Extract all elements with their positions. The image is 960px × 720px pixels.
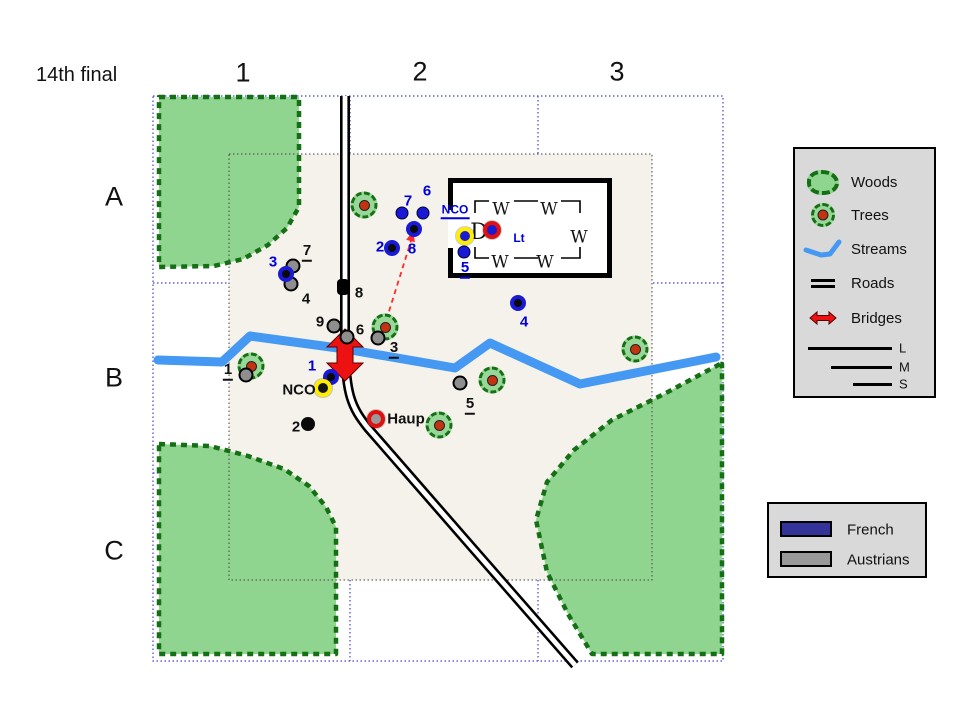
austrian-unit-label-6: 6 (356, 323, 364, 338)
austrian-unit-label-1: 1 (223, 362, 233, 381)
marker-nco[interactable] (314, 379, 332, 397)
bridges-icon (808, 310, 838, 326)
size-line-small (853, 383, 892, 386)
french-unit-label-3: 3 (269, 255, 277, 270)
size-label-l: L (899, 341, 906, 356)
marker-haup[interactable] (367, 410, 385, 428)
building-wall-letter-4: W (491, 255, 508, 272)
french-unit-3[interactable] (278, 266, 294, 282)
marker-nco[interactable] (456, 227, 474, 245)
austrian-unit-1[interactable] (239, 368, 254, 383)
marker-label-nco: NCO (441, 203, 470, 219)
austrian-unit-5[interactable] (453, 376, 468, 391)
woods-icon (807, 170, 839, 195)
austrian-unit-label-2: 2 (292, 420, 300, 435)
streams-icon (803, 238, 843, 260)
building-wall-letter-2: W (540, 202, 557, 219)
french-unit-label-8: 8 (408, 242, 416, 257)
french-swatch (780, 521, 832, 537)
building-wall-letter-5: W (536, 255, 553, 272)
roads-icon (811, 279, 835, 288)
trees-icon (811, 203, 835, 227)
austrian-unit-9[interactable] (327, 319, 342, 334)
austrian-unit-label-9: 9 (316, 315, 324, 330)
tree-icon-4 (622, 336, 649, 363)
tree-icon-5 (479, 367, 506, 394)
legend-label-roads: Roads (851, 275, 894, 292)
size-label-s: S (899, 377, 908, 392)
french-unit-8[interactable] (406, 221, 422, 237)
size-label-m: M (899, 360, 910, 375)
austrian-unit-label-7: 7 (302, 243, 312, 262)
building-wall-letter-1: W (492, 202, 509, 219)
sides-legend: French Austrians (767, 502, 927, 578)
legend-row-roads: Roads (795, 266, 934, 300)
french-unit-6[interactable] (417, 207, 430, 220)
building-wall-letter-3: W (570, 230, 587, 247)
slide-canvas: 14th final 1 2 3 A B C WWWWWD74963152876… (0, 0, 960, 720)
french-unit-label-1: 1 (308, 359, 316, 374)
austrians-swatch (780, 551, 832, 567)
austrian-unit-label-5: 5 (465, 396, 475, 415)
tree-icon-1 (351, 192, 378, 219)
size-line-large (808, 347, 892, 350)
austrian-unit-2[interactable] (301, 417, 315, 431)
french-unit-label-2: 2 (376, 240, 384, 255)
legend-row-woods: Woods (795, 165, 934, 199)
legend-label-woods: Woods (851, 174, 897, 191)
french-unit-5[interactable] (458, 246, 471, 259)
marker-label-lt: Lt (513, 232, 524, 244)
marker-label-haup: Haup (387, 412, 425, 427)
austrian-unit-6[interactable] (340, 330, 355, 345)
legend-label-streams: Streams (851, 241, 907, 258)
austrian-unit-label-8: 8 (355, 286, 363, 301)
austrian-unit-label-3: 3 (389, 340, 399, 359)
legend-row-bridges: Bridges (795, 301, 934, 335)
legend-row-streams: Streams (795, 232, 934, 266)
size-line-medium (831, 366, 892, 369)
austrians-label: Austrians (847, 552, 910, 569)
legend-label-trees: Trees (851, 207, 889, 224)
french-unit-label-7: 7 (404, 194, 412, 209)
french-unit-label-4: 4 (520, 315, 528, 330)
legend-row-trees: Trees (795, 198, 934, 232)
terrain-legend: Woods Trees Streams Roads Bridges (793, 147, 936, 398)
austrian-unit-8[interactable] (337, 279, 349, 295)
marker-lt[interactable] (483, 221, 501, 239)
french-unit-label-5: 5 (460, 260, 470, 279)
french-label: French (847, 522, 894, 539)
french-unit-2[interactable] (384, 240, 400, 256)
legend-label-bridges: Bridges (851, 310, 902, 327)
austrian-unit-3[interactable] (371, 331, 386, 346)
french-unit-label-6: 6 (423, 184, 431, 199)
austrian-unit-label-4: 4 (302, 292, 310, 307)
tree-icon-6 (426, 412, 453, 439)
marker-label-nco: NCO (282, 383, 315, 398)
french-unit-4[interactable] (510, 295, 526, 311)
